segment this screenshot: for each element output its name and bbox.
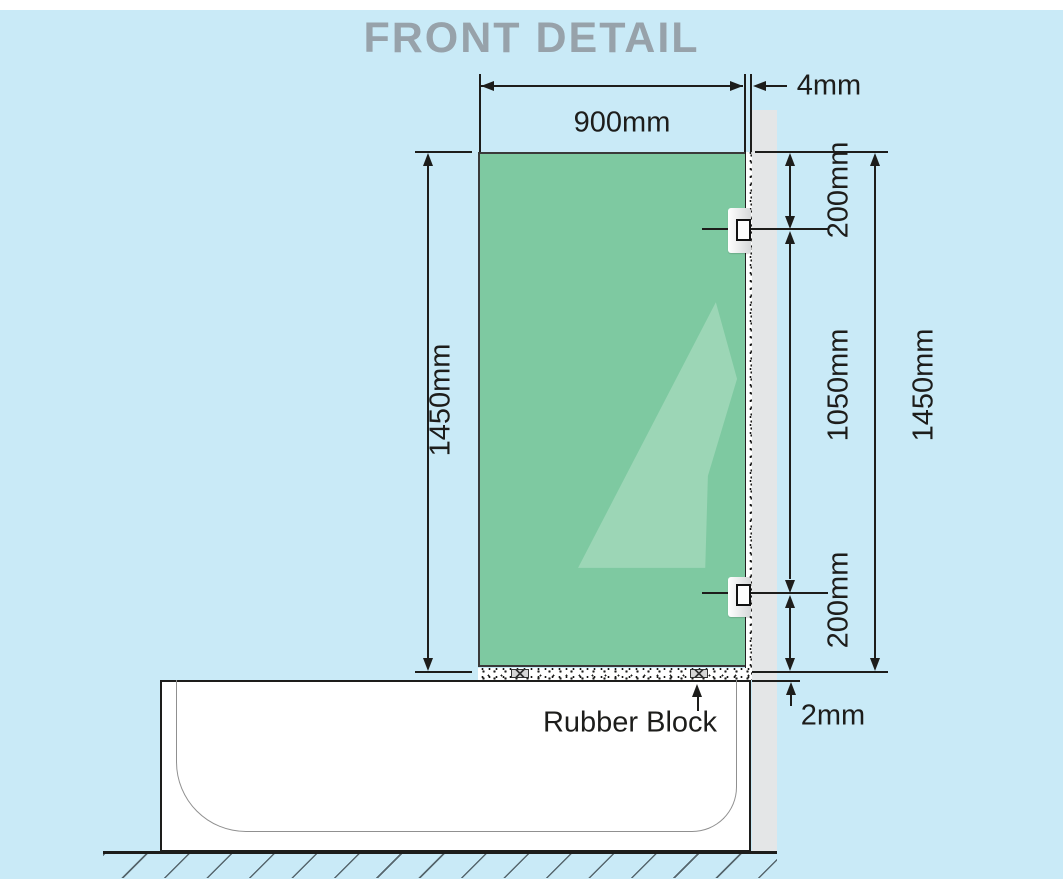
dim-arrowhead (730, 81, 743, 91)
dimension-line-1050mm (789, 244, 791, 579)
dim-arrowhead (785, 658, 795, 671)
extension-line (744, 74, 746, 152)
rubber-block-label: Rubber Block (543, 709, 717, 738)
dimension-label-4mm: 4mm (797, 72, 861, 101)
dim-arrowhead (785, 153, 795, 166)
extension-line (750, 74, 752, 152)
ground-hatching (103, 854, 777, 878)
dim-arrowhead (785, 595, 795, 608)
extension-line (755, 151, 888, 153)
dim-arrowhead (423, 658, 433, 671)
dimension-label-1450mm-right: 1450mm (910, 329, 939, 442)
dim-arrowhead (785, 231, 795, 244)
dim-arrowhead (870, 658, 880, 671)
bathtub-inner-rim (176, 680, 737, 832)
extension-line (752, 671, 888, 673)
dimension-label-200mm-bottom: 200mm (825, 552, 854, 649)
dim-arrowhead (785, 580, 795, 593)
glass-reflection (480, 154, 745, 665)
front-detail-diagram: FRONT DETAIL 900mm 4mm 1450mm 200mm (0, 0, 1063, 879)
rubber-block (690, 669, 708, 678)
dimension-line-1450mm-right (874, 166, 876, 658)
dim-arrowhead (481, 81, 494, 91)
dimension-line-900mm (481, 85, 743, 87)
dimension-line-200mm-bottom (789, 608, 791, 658)
wall (752, 110, 777, 852)
extension-line (415, 671, 472, 673)
dimension-label-2mm: 2mm (801, 702, 865, 731)
dimension-line-200mm-top (789, 166, 791, 216)
dimension-label-900mm: 900mm (574, 109, 671, 138)
dimension-line-4mm (765, 85, 787, 87)
dimension-label-200mm-top: 200mm (825, 142, 854, 239)
diagram-title: FRONT DETAIL (0, 14, 1063, 63)
dimension-label-1450mm-left: 1450mm (427, 344, 456, 457)
bracket-top-fixing (736, 219, 751, 241)
rubber-block (511, 669, 529, 678)
dim-arrowhead (870, 153, 880, 166)
dimension-tick-top-bracket (702, 228, 828, 230)
dim-arrowhead (423, 153, 433, 166)
dim-arrowhead (785, 216, 795, 229)
dimension-line-2mm-leader (790, 694, 792, 706)
dimension-label-1050mm: 1050mm (825, 329, 854, 442)
dimension-tick-bottom-bracket (702, 592, 828, 594)
bracket-bottom-fixing (736, 584, 751, 606)
